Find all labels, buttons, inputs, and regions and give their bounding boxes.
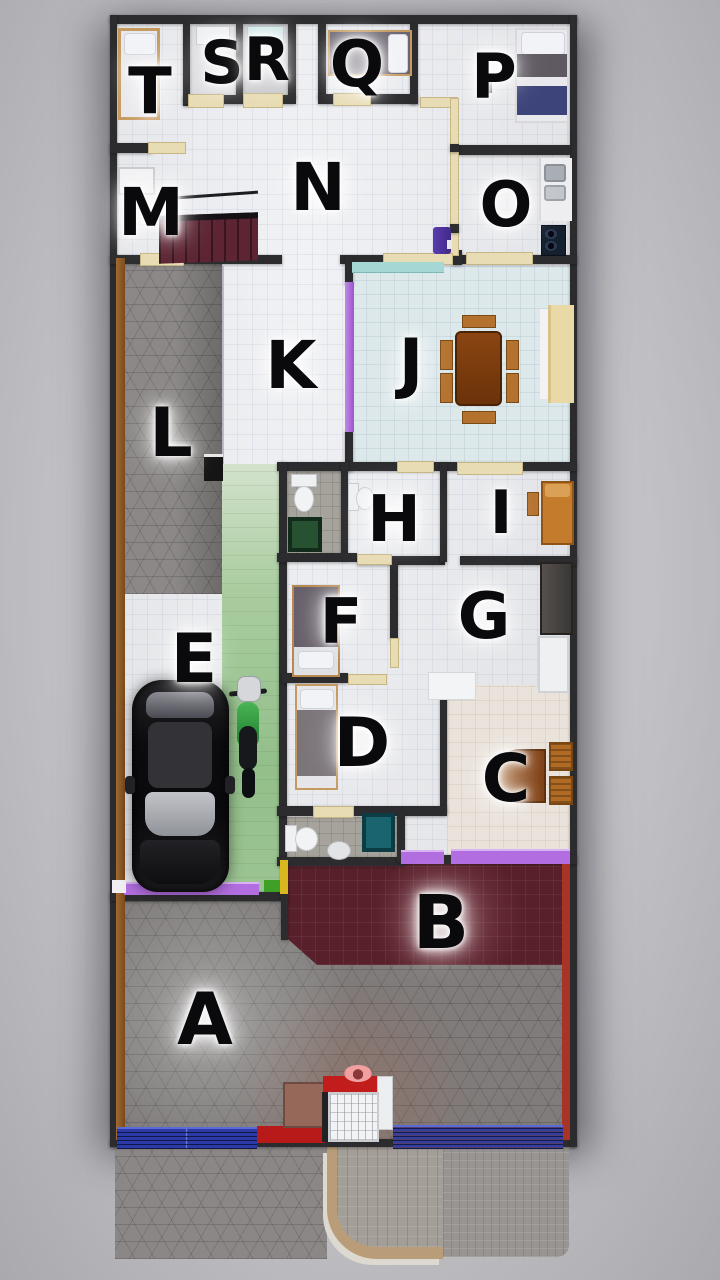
teal-accent-wall	[352, 262, 444, 273]
stove-burner	[545, 229, 557, 239]
dining-chair	[506, 373, 519, 403]
kitchen-sink	[544, 164, 566, 182]
room-label-c: C	[482, 746, 530, 812]
wall	[440, 462, 447, 562]
refrigerator-handle	[447, 240, 452, 249]
room-label-r: R	[244, 30, 290, 90]
car-hood	[140, 840, 220, 884]
green-mat	[264, 880, 281, 892]
gate-ornament	[344, 1065, 372, 1082]
door-sill	[148, 142, 186, 154]
cabinet	[538, 636, 569, 693]
purple-accent-wall	[345, 282, 354, 432]
wall	[318, 24, 326, 98]
partition-gap	[450, 224, 459, 233]
sideboard-ledge	[540, 309, 548, 399]
side-table	[527, 492, 539, 516]
dining-chair	[506, 340, 519, 370]
wall	[279, 462, 287, 865]
room-label-p: P	[471, 46, 516, 108]
window-frame-purple	[401, 850, 444, 864]
room-label-m: M	[118, 180, 184, 246]
kitchen-sink	[544, 185, 566, 201]
room-label-l: L	[149, 400, 192, 468]
bed-pillow	[300, 689, 334, 709]
desk	[428, 672, 476, 700]
scooter-front	[237, 676, 261, 702]
door-sill	[313, 806, 354, 818]
room-label-g: G	[458, 585, 511, 649]
room-label-s: S	[200, 33, 243, 93]
room-label-h: H	[367, 488, 421, 552]
fence-strip-right	[562, 858, 570, 1140]
wall	[110, 143, 152, 153]
room-label-e: E	[171, 626, 217, 694]
bed-blanket-gray	[517, 54, 567, 77]
gate-side-wall-red	[257, 1126, 325, 1143]
dining-chair	[462, 315, 496, 328]
bed-pillow	[124, 33, 156, 55]
chair	[549, 742, 573, 771]
scooter-rear-wheel	[242, 768, 255, 798]
room-label-f: F	[320, 591, 362, 653]
bed-blanket-navy	[517, 86, 567, 115]
door-sill	[390, 638, 399, 668]
water-basin	[362, 813, 395, 852]
wall	[341, 462, 348, 560]
dining-chair	[440, 340, 453, 370]
wall	[390, 560, 398, 640]
window-frame-purple	[451, 849, 570, 864]
dining-table	[455, 331, 502, 406]
dining-chair	[462, 411, 496, 424]
room-label-q: Q	[330, 33, 384, 97]
wall	[277, 553, 357, 562]
room-label-a: A	[177, 983, 233, 1055]
stove-burner	[545, 241, 557, 251]
toilet-bowl	[295, 827, 318, 851]
scooter-seat	[239, 726, 257, 770]
car-mirror	[125, 776, 135, 794]
chair	[549, 776, 573, 805]
wardrobe	[540, 562, 573, 635]
toilet-bowl	[294, 486, 314, 512]
wall	[440, 685, 447, 813]
room-label-k: K	[265, 333, 316, 399]
kitchen-partition-line	[222, 266, 224, 464]
bed-blanket-gray	[297, 710, 336, 776]
black-mat	[204, 454, 223, 481]
room-label-d: D	[334, 710, 390, 778]
wall	[110, 15, 577, 24]
car-roof	[148, 722, 212, 788]
door-sill	[243, 93, 283, 108]
fence-strip-left	[116, 258, 125, 1140]
door-sill	[348, 674, 387, 685]
yellow-post	[280, 860, 288, 894]
street-slab	[443, 1147, 569, 1257]
gate-ramp	[283, 1082, 325, 1128]
water-basin	[288, 517, 322, 552]
room-label-i: I	[490, 483, 512, 543]
floor-plan-screenshot: { "plan_type": "house-floor-plan-top-vie…	[0, 0, 720, 1280]
car-windshield	[145, 792, 215, 836]
wall	[458, 145, 570, 155]
street-walkway	[327, 1147, 443, 1259]
fence-blue-left	[117, 1127, 257, 1149]
bed-pillow	[521, 32, 565, 55]
car-mirror	[225, 776, 235, 794]
partition-gap	[450, 144, 459, 152]
sliding-gate	[328, 1092, 379, 1142]
door-sill	[397, 461, 434, 473]
room-label-j: J	[399, 331, 424, 397]
bed-pillow	[388, 34, 408, 73]
window-sill	[457, 462, 523, 475]
sideboard	[548, 305, 574, 403]
scene: TSRQPMNOLKJHIEFGDCBA	[0, 0, 720, 1280]
window-cap	[112, 880, 126, 893]
sink	[327, 841, 351, 860]
bed-pillow	[545, 484, 570, 497]
room-label-o: O	[480, 174, 533, 236]
dining-chair	[440, 373, 453, 403]
street-pavers	[115, 1147, 327, 1259]
window-sill	[466, 252, 533, 265]
room-label-b: B	[413, 886, 469, 960]
gate-pillar	[377, 1076, 393, 1130]
room-label-t: T	[128, 60, 172, 124]
fence-blue-right	[393, 1125, 563, 1149]
room-label-n: N	[290, 155, 345, 221]
